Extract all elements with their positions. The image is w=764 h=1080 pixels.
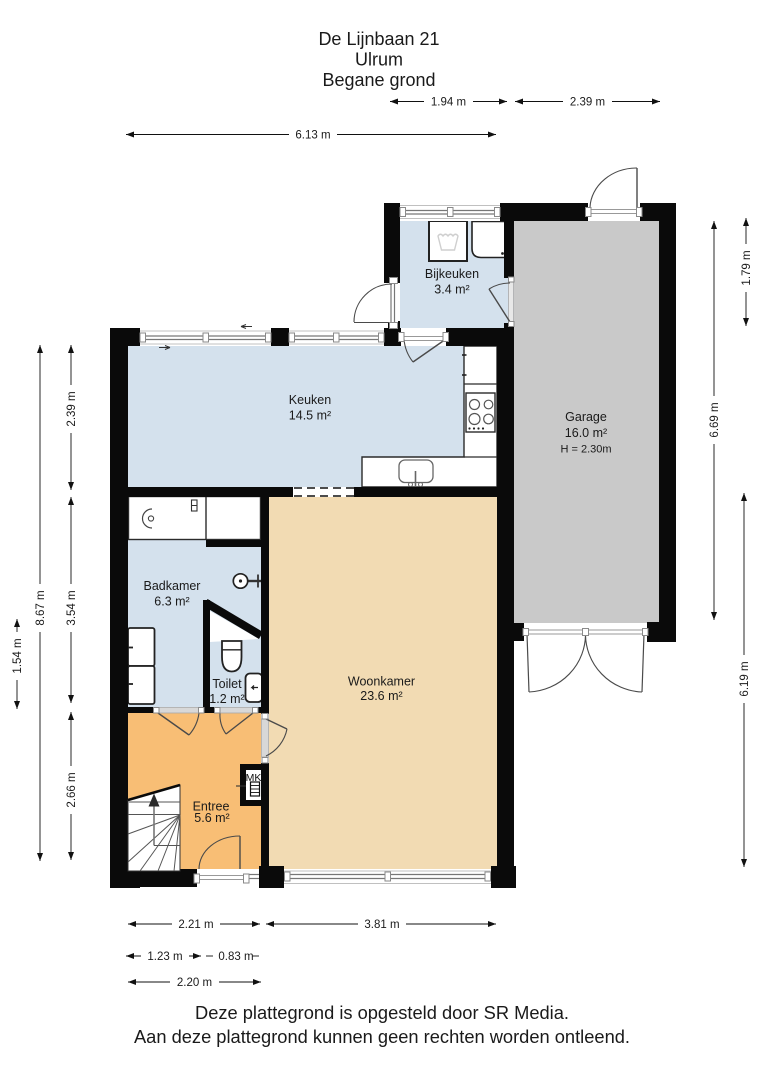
- svg-text:2.20 m: 2.20 m: [177, 977, 212, 989]
- svg-text:16.0 m²: 16.0 m²: [565, 426, 607, 440]
- svg-text:6.3 m²: 6.3 m²: [154, 595, 189, 609]
- svg-text:Badkamer: Badkamer: [144, 579, 201, 593]
- svg-text:Keuken: Keuken: [289, 393, 331, 407]
- svg-text:23.6 m²: 23.6 m²: [360, 689, 402, 703]
- svg-text:2.39 m: 2.39 m: [66, 391, 78, 426]
- svg-text:6.69 m: 6.69 m: [709, 402, 721, 437]
- svg-text:3.54 m: 3.54 m: [66, 590, 78, 625]
- svg-text:1.94 m: 1.94 m: [431, 97, 466, 109]
- svg-text:8.67 m: 8.67 m: [35, 590, 47, 625]
- svg-text:0.83 m: 0.83 m: [218, 951, 253, 963]
- svg-text:Woonkamer: Woonkamer: [348, 675, 415, 689]
- svg-text:2.21 m: 2.21 m: [178, 919, 213, 931]
- svg-text:1.23 m: 1.23 m: [147, 951, 182, 963]
- svg-text:Aan deze plattegrond kunnen ge: Aan deze plattegrond kunnen geen rechten…: [134, 1026, 630, 1047]
- svg-text:3.4 m²: 3.4 m²: [434, 283, 469, 297]
- svg-text:3.81 m: 3.81 m: [364, 919, 399, 931]
- svg-text:De Lijnbaan 21: De Lijnbaan 21: [318, 29, 439, 49]
- svg-text:Garage: Garage: [565, 410, 607, 424]
- svg-text:14.5 m²: 14.5 m²: [289, 409, 331, 423]
- svg-text:6.13 m: 6.13 m: [295, 130, 330, 142]
- svg-text:Deze plattegrond is opgesteld: Deze plattegrond is opgesteld door SR Me…: [195, 1002, 569, 1023]
- svg-text:Bijkeuken: Bijkeuken: [425, 267, 479, 281]
- svg-text:6.19 m: 6.19 m: [739, 661, 751, 696]
- svg-text:5.6 m²: 5.6 m²: [194, 811, 229, 825]
- svg-text:H = 2.30m: H = 2.30m: [560, 444, 611, 456]
- svg-text:2.66 m: 2.66 m: [66, 772, 78, 807]
- svg-text:Toilet: Toilet: [212, 677, 242, 691]
- svg-text:1.54 m: 1.54 m: [12, 638, 24, 673]
- svg-text:1.79 m: 1.79 m: [741, 250, 753, 285]
- svg-text:1.2 m²: 1.2 m²: [209, 692, 244, 706]
- svg-text:Begane grond: Begane grond: [322, 70, 435, 90]
- svg-text:2.39 m: 2.39 m: [570, 97, 605, 109]
- svg-text:Ulrum: Ulrum: [355, 50, 403, 70]
